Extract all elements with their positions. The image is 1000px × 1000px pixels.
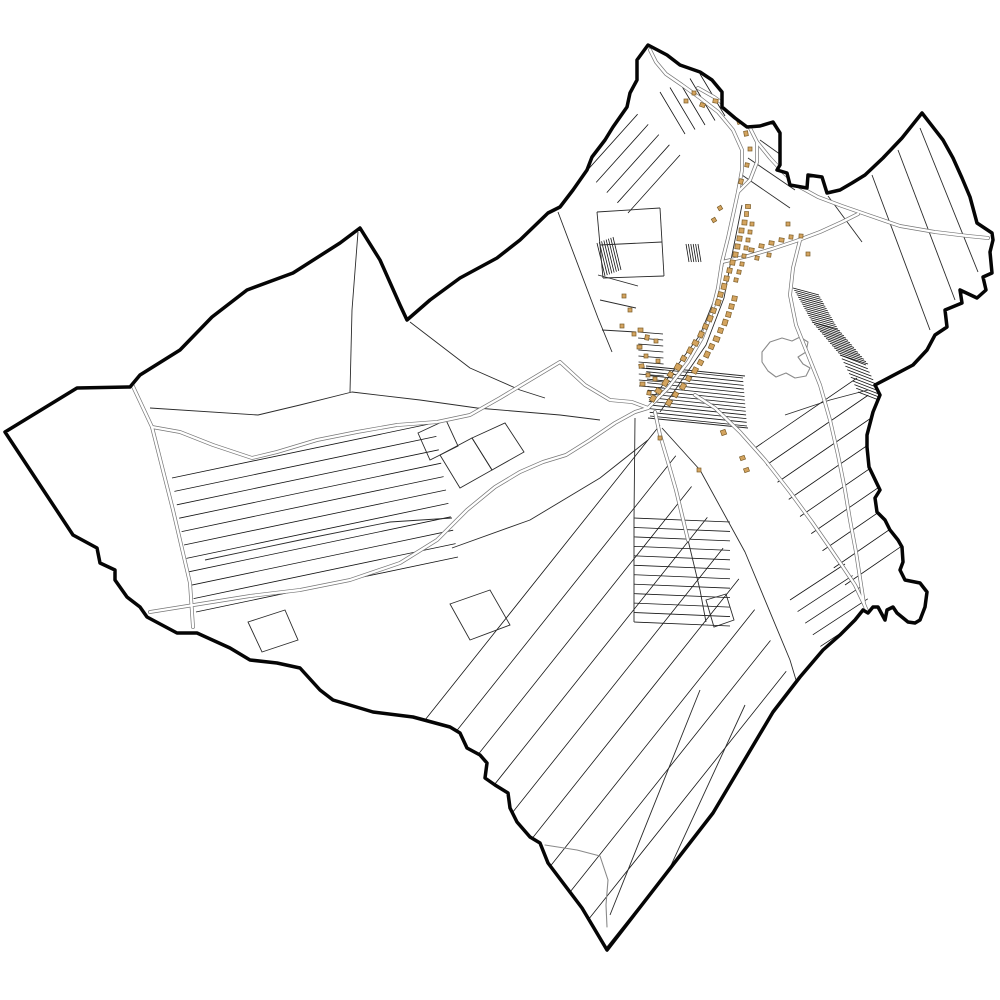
road-surface	[648, 50, 742, 408]
building-footprint	[644, 354, 648, 358]
building-footprint	[710, 307, 716, 313]
building-footprint	[789, 235, 793, 239]
strip-parcel-hatch-line	[504, 579, 739, 874]
building-footprint	[744, 246, 748, 250]
strip-parcel-hatch-line	[809, 317, 835, 324]
strip-parcel-hatch-line	[847, 370, 873, 380]
strip-parcel-hatch-line	[638, 350, 663, 352]
strip-parcel-hatch-line	[845, 366, 871, 376]
strip-parcel-hatch-line	[488, 548, 723, 843]
building-footprint	[749, 248, 755, 253]
building-footprint	[658, 436, 662, 440]
strip-parcel-hatch-line	[182, 477, 444, 532]
strip-parcel-hatch-line	[808, 315, 834, 322]
building-footprint	[639, 364, 645, 369]
strip-parcel-hatch-line	[634, 622, 730, 626]
building-footprint	[640, 382, 645, 386]
strip-parcel-hatch-line	[790, 564, 845, 600]
road-casing	[648, 50, 742, 408]
strip-parcel-hatch-line	[607, 135, 659, 193]
road-casing	[790, 240, 864, 604]
building-footprint	[748, 230, 752, 234]
strip-parcel-hatch-line	[799, 299, 825, 306]
strip-parcel-hatch-line	[177, 450, 439, 505]
building-footprint	[735, 244, 740, 249]
building-footprint	[729, 304, 735, 310]
strip-parcel-hatch-line	[793, 288, 819, 295]
building-footprint	[713, 336, 720, 343]
strip-parcel-hatch-layer	[172, 74, 947, 997]
parcel-line	[603, 276, 664, 278]
building-footprint	[737, 236, 742, 241]
building-footprint	[638, 328, 643, 332]
building-footprint	[656, 359, 660, 363]
strip-parcel-hatch-line	[634, 603, 730, 607]
cadastral-map-canvas	[0, 0, 1000, 1000]
strip-parcel-hatch-line	[851, 377, 877, 387]
building-footprint	[692, 91, 696, 95]
building-footprint	[679, 383, 686, 391]
strip-parcel-hatch-line	[634, 527, 730, 531]
strip-parcel-hatch-line	[617, 145, 669, 203]
building-footprint	[637, 345, 642, 349]
strip-parcel-hatch-line	[172, 423, 434, 478]
building-footprint	[645, 335, 650, 341]
building-footprint	[759, 244, 765, 249]
parcel-line	[872, 175, 930, 330]
cadastral-map-page	[0, 0, 1000, 1000]
building-footprint	[622, 294, 626, 298]
strip-parcel-hatch-line	[660, 92, 685, 134]
building-footprint	[717, 327, 723, 333]
water-layer	[545, 337, 810, 927]
road-casing	[150, 408, 648, 612]
parcel-block	[248, 610, 298, 652]
parcel-block	[440, 438, 492, 488]
strip-parcel-hatch-line	[638, 338, 663, 340]
parcel-line	[150, 392, 600, 420]
parcel-line	[662, 428, 802, 700]
strip-parcel-hatch-line	[628, 155, 680, 213]
building-footprint	[628, 308, 632, 312]
building-footprint	[647, 391, 652, 396]
road-casing	[152, 362, 648, 458]
building-footprint	[653, 377, 657, 381]
strip-parcel-hatch-line	[844, 362, 870, 372]
parcel-line	[898, 150, 955, 300]
building-footprint	[727, 268, 733, 274]
building-footprint	[711, 217, 716, 222]
strip-parcel-hatch-line	[805, 587, 860, 623]
building-footprint	[769, 241, 775, 246]
building-footprint	[748, 147, 752, 151]
building-footprint	[654, 339, 658, 343]
parcel-lines-layer	[150, 128, 978, 915]
building-footprint	[738, 179, 743, 185]
strip-parcel-hatch-line	[798, 297, 824, 304]
building-footprint	[740, 262, 745, 267]
parcel-line	[350, 232, 358, 392]
building-footprint	[713, 99, 719, 104]
strip-parcel-hatch-line	[801, 302, 827, 309]
strip-parcel-hatch-line	[179, 463, 441, 518]
building-footprint	[684, 99, 688, 103]
parcel-line	[634, 418, 635, 622]
building-footprint	[734, 278, 739, 283]
building-footprint	[742, 254, 747, 259]
strip-parcel-hatch-line	[186, 503, 448, 558]
building-footprint	[667, 371, 674, 378]
strip-parcel-hatch-line	[596, 124, 648, 182]
strip-parcel-hatch-line	[806, 311, 832, 318]
road-surface	[790, 240, 864, 604]
strip-parcel-hatch-line	[797, 295, 823, 302]
strip-parcel-hatch-line	[634, 565, 730, 569]
roads-layer	[130, 50, 988, 627]
building-footprint	[703, 351, 710, 359]
strip-parcel-hatch-line	[842, 359, 868, 369]
building-footprint	[732, 296, 738, 302]
strip-parcel-hatch-line	[586, 114, 638, 172]
building-footprint	[730, 260, 736, 266]
parcel-line	[602, 330, 636, 332]
building-footprint	[737, 270, 742, 275]
parcel-line	[452, 440, 648, 548]
building-footprint	[806, 252, 810, 256]
building-footprint	[733, 252, 739, 258]
building-footprint	[632, 332, 636, 336]
building-footprint	[745, 204, 750, 208]
road-casing	[695, 395, 870, 618]
strip-parcel-hatch-line	[425, 425, 660, 720]
strip-parcel-hatch-line	[457, 487, 692, 782]
strip-parcel-hatch-line	[804, 308, 830, 315]
stream-line	[545, 845, 608, 927]
building-footprint	[743, 467, 749, 472]
building-footprint	[708, 343, 715, 350]
building-footprint	[721, 283, 727, 290]
building-footprint	[697, 359, 704, 366]
parcel-block	[418, 420, 458, 460]
road-surface	[695, 395, 870, 618]
building-footprint	[745, 163, 750, 168]
strip-parcel-hatch-line	[634, 575, 730, 579]
strip-parcel-hatch-line	[472, 517, 707, 812]
strip-parcel-hatch-line	[520, 610, 755, 905]
parcel-block	[706, 594, 734, 627]
building-footprint	[697, 468, 701, 472]
strip-parcel-hatch-line	[638, 356, 663, 358]
building-footprint	[767, 253, 772, 258]
strip-parcel-hatch-line	[794, 290, 820, 297]
parcel-line	[597, 208, 660, 212]
building-footprint	[620, 324, 624, 328]
building-footprint	[786, 222, 790, 226]
parcel-line	[410, 322, 545, 398]
strip-parcel-hatch-line	[807, 313, 833, 320]
building-footprint	[744, 211, 748, 216]
building-footprint	[717, 205, 722, 210]
strip-parcel-hatch-line	[575, 104, 627, 162]
building-footprint	[739, 455, 745, 460]
road-surface	[150, 408, 648, 612]
strip-parcel-hatch-line	[191, 530, 453, 585]
building-footprint	[742, 220, 747, 225]
building-footprint	[724, 276, 730, 282]
parcel-block	[450, 590, 510, 640]
building-footprint	[744, 131, 749, 137]
strip-parcel-hatch-line	[802, 304, 828, 311]
strip-parcel-hatch-line	[634, 584, 730, 588]
building-footprint	[646, 373, 650, 377]
parcel-line	[600, 300, 636, 308]
building-footprint	[722, 319, 728, 326]
building-footprint	[717, 291, 723, 297]
building-footprint	[739, 228, 744, 233]
building-footprint	[725, 311, 731, 317]
strip-parcel-hatch-line	[551, 671, 786, 966]
building-footprint	[746, 238, 750, 242]
strip-parcel-hatch-line	[803, 306, 829, 313]
strip-parcel-hatch-line	[849, 374, 875, 384]
strip-parcel-hatch-line	[798, 576, 853, 612]
building-footprint	[779, 238, 785, 243]
building-footprint	[720, 429, 726, 435]
building-footprint	[799, 234, 803, 238]
strip-parcel-hatch-line	[796, 293, 822, 300]
parcel-line	[558, 212, 612, 352]
strip-parcel-hatch-line	[634, 613, 730, 617]
strip-parcel-hatch-line	[189, 517, 451, 572]
building-footprint	[750, 222, 754, 226]
building-footprint	[755, 256, 760, 261]
parcel-block	[472, 423, 524, 470]
